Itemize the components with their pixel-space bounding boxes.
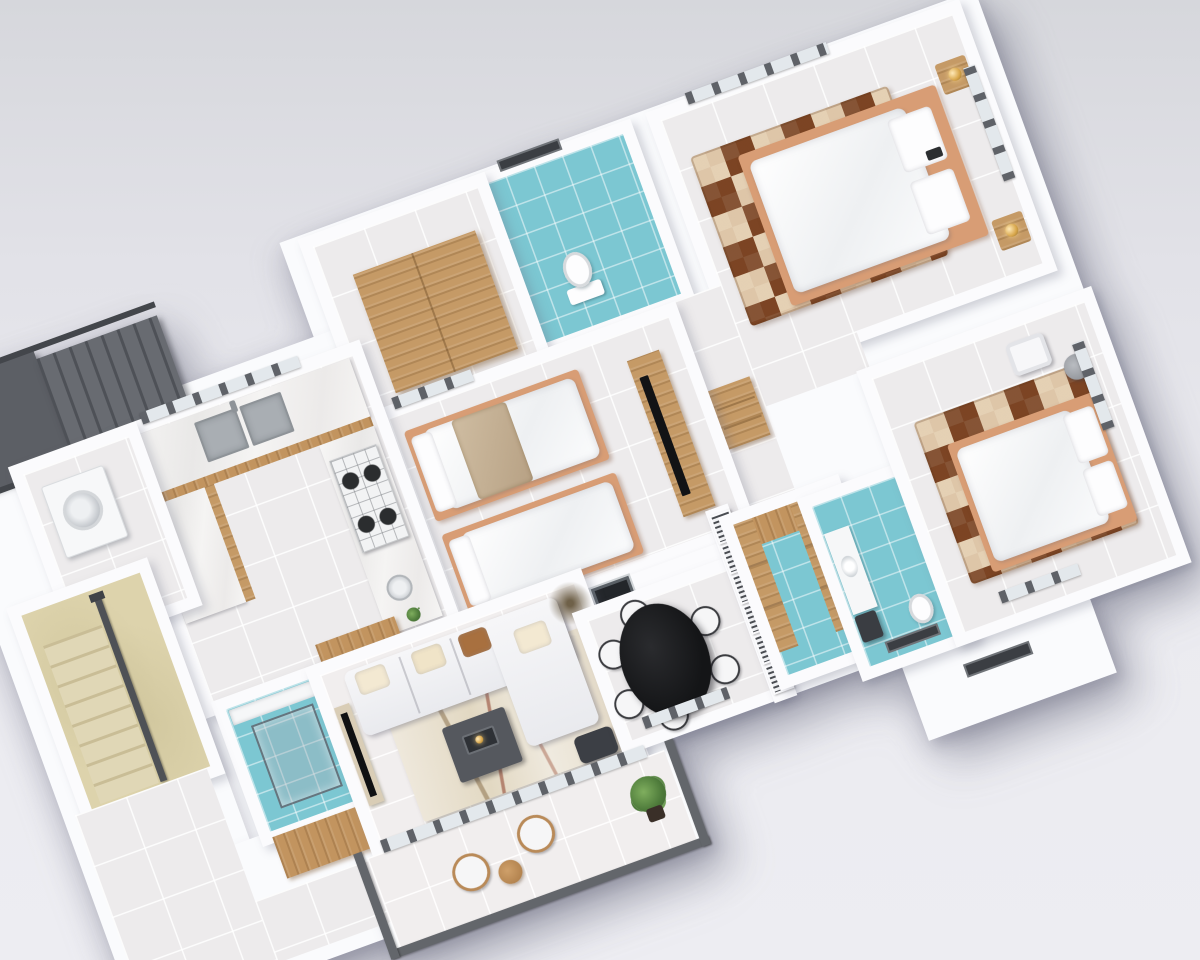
dining-chair-6 (706, 650, 744, 688)
tv-console (627, 350, 716, 518)
balcony-chair-1 (447, 848, 496, 897)
toilet-bowl-2 (905, 590, 938, 626)
bathroom-2-cabinet (854, 609, 884, 643)
floor-plan-scene (0, 0, 1200, 960)
bedroom-3-desk-chair (1004, 332, 1053, 378)
balcony-chair-2 (512, 810, 561, 859)
balcony-table (495, 857, 526, 888)
apartment-plan-rotated (0, 0, 1200, 960)
